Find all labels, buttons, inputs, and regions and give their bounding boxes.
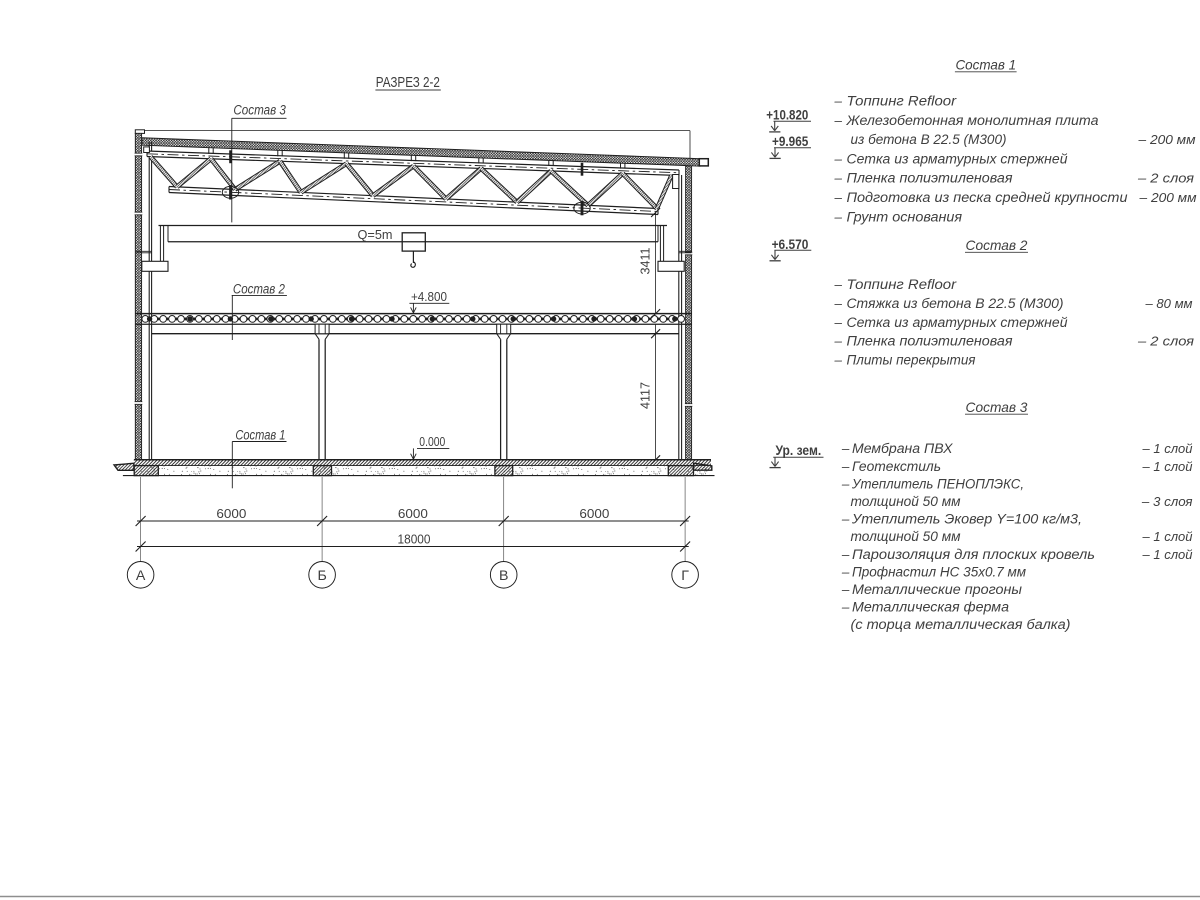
svg-text:Ур. зем.: Ур. зем. (776, 442, 822, 458)
svg-text:4117: 4117 (638, 382, 653, 409)
svg-text:толщиной 50 мм: толщиной 50 мм (851, 494, 961, 509)
svg-text:Металлическая ферма: Металлическая ферма (852, 600, 1009, 615)
svg-text:– 3 слоя: – 3 слоя (1141, 494, 1193, 509)
svg-text:толщиной 50 мм: толщиной 50 мм (851, 529, 961, 544)
svg-text:–: – (841, 512, 850, 527)
svg-text:Сетка из арматурных стержней: Сетка из арматурных стержней (847, 315, 1069, 330)
svg-text:–: – (841, 582, 850, 597)
svg-text:0.000: 0.000 (419, 434, 445, 449)
svg-text:Мембрана ПВХ: Мембрана ПВХ (852, 441, 954, 456)
svg-text:– 80 мм: – 80 мм (1145, 296, 1193, 311)
svg-text:–: – (834, 190, 843, 205)
svg-text:– 1 слой: – 1 слой (1142, 459, 1194, 474)
svg-text:Утеплитель ПЕНОПЛЭКС,: Утеплитель ПЕНОПЛЭКС, (851, 476, 1024, 491)
svg-text:из бетона В 22.5 (М300): из бетона В 22.5 (М300) (851, 132, 1007, 147)
svg-text:6000: 6000 (398, 506, 428, 521)
svg-text:Пароизоляция для плоских крове: Пароизоляция для плоских кровель (852, 547, 1095, 562)
svg-text:Подготовка из песка средней кр: Подготовка из песка средней крупности (847, 190, 1129, 205)
svg-text:–: – (834, 352, 843, 367)
svg-text:–: – (834, 296, 843, 311)
svg-text:Состав 3: Состав 3 (233, 103, 286, 118)
svg-text:РАЗРЕЗ 2-2: РАЗРЕЗ 2-2 (376, 74, 440, 91)
svg-text:–: – (834, 277, 843, 292)
svg-text:–: – (834, 151, 843, 166)
svg-text:Плиты перекрытия: Плиты перекрытия (847, 352, 976, 367)
svg-text:+6.570: +6.570 (772, 236, 809, 252)
svg-text:Пленка полиэтиленовая: Пленка полиэтиленовая (847, 334, 1013, 349)
svg-text:–: – (834, 113, 843, 128)
svg-text:–: – (841, 547, 850, 562)
svg-text:Железобетонная монолитная пли: Железобетонная монолитная плита (845, 113, 1098, 128)
svg-text:(с торца металлическая балка): (с торца металлическая балка) (851, 617, 1071, 632)
svg-text:Б: Б (317, 568, 326, 584)
svg-text:–: – (834, 209, 843, 224)
svg-text:Q=5m: Q=5m (358, 227, 393, 242)
svg-text:– 1 слой: – 1 слой (1142, 547, 1194, 562)
svg-text:– 2 слоя: – 2 слоя (1137, 334, 1194, 349)
svg-text:Грунт основания: Грунт основания (847, 209, 963, 224)
svg-text:Топпинг Refloor: Топпинг Refloor (847, 277, 957, 292)
svg-text:–: – (841, 441, 850, 456)
svg-text:Состав 3: Состав 3 (966, 400, 1028, 415)
svg-text:–: – (834, 94, 843, 109)
svg-text:–: – (834, 171, 843, 186)
svg-text:Состав 1: Состав 1 (235, 428, 285, 443)
svg-text:А: А (136, 568, 146, 584)
svg-text:В: В (499, 568, 508, 584)
svg-text:Сетка из арматурных стержней: Сетка из арматурных стержней (847, 151, 1069, 166)
svg-text:Металлические прогоны: Металлические прогоны (852, 582, 1022, 597)
svg-text:Стяжка из бетона В 22.5 (М300): Стяжка из бетона В 22.5 (М300) (847, 296, 1064, 311)
svg-text:–: – (841, 476, 850, 491)
svg-text:6000: 6000 (216, 506, 246, 521)
svg-text:Утеплитель Эковер Y=100 кг/м3,: Утеплитель Эковер Y=100 кг/м3, (851, 512, 1082, 527)
svg-text:Состав 2: Состав 2 (233, 281, 285, 296)
svg-text:+9.965: +9.965 (772, 133, 808, 149)
svg-text:Состав 2: Состав 2 (966, 238, 1028, 253)
svg-text:3411: 3411 (638, 248, 653, 275)
svg-text:– 2 слоя: – 2 слоя (1137, 171, 1194, 186)
svg-text:18000: 18000 (398, 532, 431, 547)
svg-text:Профнастил НС 35х0.7 мм: Профнастил НС 35х0.7 мм (852, 564, 1026, 579)
svg-text:Состав 1: Состав 1 (955, 58, 1016, 73)
svg-text:+10.820: +10.820 (766, 107, 808, 123)
svg-text:–: – (834, 315, 843, 330)
svg-text:+4.800: +4.800 (411, 289, 447, 304)
svg-text:– 200 мм: – 200 мм (1137, 132, 1195, 147)
svg-text:–: – (841, 459, 850, 474)
svg-text:–: – (841, 564, 850, 579)
svg-text:– 1 слой: – 1 слой (1142, 441, 1194, 456)
svg-text:Пленка полиэтиленовая: Пленка полиэтиленовая (847, 171, 1013, 186)
svg-text:Топпинг Refloor: Топпинг Refloor (847, 94, 957, 109)
svg-text:– 1 слой: – 1 слой (1142, 529, 1194, 544)
svg-text:– 200 мм: – 200 мм (1138, 190, 1196, 205)
svg-text:–: – (834, 334, 843, 349)
svg-text:Геотекстиль: Геотекстиль (852, 459, 941, 474)
svg-text:–: – (841, 600, 850, 615)
svg-text:Г: Г (681, 568, 689, 584)
svg-text:6000: 6000 (579, 506, 609, 521)
